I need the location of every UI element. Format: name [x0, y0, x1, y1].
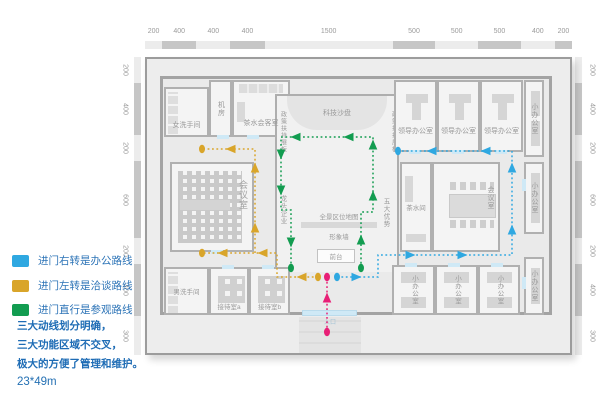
room-label: 领导办公室	[484, 126, 519, 136]
ruler-segment	[134, 316, 141, 355]
legend-item-negotiation: 进门左转是洽谈路线	[12, 278, 133, 293]
negotiation-route-swatch	[12, 280, 29, 292]
ruler-segment	[575, 83, 582, 135]
ruler-segment	[393, 41, 436, 49]
chairs	[450, 220, 494, 228]
policy-board-left-label: 政策扶持展板	[278, 102, 288, 162]
ruler-segment	[575, 238, 582, 264]
room-reception-a: 接待室a	[209, 267, 249, 315]
door	[262, 265, 274, 269]
door	[405, 263, 417, 267]
room-label: 女洗手间	[173, 120, 201, 130]
top-ruler	[145, 41, 572, 49]
room-small-office-right-middle: 小办公室	[524, 162, 544, 234]
room-label: 小办公室	[529, 103, 539, 135]
door	[491, 263, 503, 267]
dimension-label: 200	[148, 28, 160, 35]
room-label: 小办公室	[529, 270, 539, 302]
legend-label: 进门左转是洽谈路线	[38, 278, 133, 293]
dimension-label: 300	[589, 330, 596, 342]
ruler-segment	[575, 316, 582, 355]
ruler-segment	[134, 238, 141, 264]
dimension-label: 400	[207, 28, 219, 35]
tour-route-swatch	[12, 304, 29, 316]
dimension-label: 200	[589, 142, 596, 154]
dimension-label: 200	[122, 64, 129, 76]
floor-plan: 女洗手间 机房 茶水会客室 科技沙盘 政策扶持展板 政策扶持展板 龙头企业 五大…	[145, 57, 572, 355]
image-wall-label: 形象墙	[314, 231, 364, 240]
dimension-label: 400	[589, 284, 596, 296]
podium-table	[180, 200, 230, 210]
room-meeting: 会议室	[170, 162, 254, 252]
legend-item-tour: 进门直行是参观路线	[12, 302, 133, 317]
ruler-segment	[521, 41, 555, 49]
dimension-label: 500	[408, 28, 420, 35]
dimension-label: 200	[589, 64, 596, 76]
dimension-label: 400	[122, 103, 129, 115]
ruler-segment	[575, 161, 582, 239]
legend-item-office: 进门右转是办公路线	[12, 253, 133, 268]
ruler-segment	[134, 264, 141, 316]
ruler-segment	[162, 41, 196, 49]
left-ruler	[134, 57, 141, 355]
door	[522, 179, 526, 191]
room-label: 小办公室	[494, 275, 504, 305]
door	[247, 135, 259, 139]
ruler-segment	[265, 41, 393, 49]
door	[495, 150, 507, 154]
dimension-label: 600	[122, 194, 129, 206]
room-small-office-right-bottom: 小办公室	[524, 257, 544, 315]
legend-label: 进门直行是参观路线	[38, 302, 133, 317]
room-label: 科技沙盘	[323, 108, 351, 118]
dimension-label: 200	[122, 142, 129, 154]
front-desk: 前台	[317, 249, 355, 263]
ruler-segment	[134, 83, 141, 135]
room-label: 男洗手间	[174, 286, 200, 296]
room-label: 茶水会客室	[244, 118, 279, 128]
note-line-1: 三大动线划分明确，	[17, 318, 112, 333]
door	[522, 277, 526, 289]
room-small-office-2: 小办公室	[435, 265, 478, 315]
ruler-segment	[145, 41, 162, 49]
display-counter	[301, 222, 377, 228]
ruler-segment	[435, 41, 478, 49]
door	[452, 150, 464, 154]
door	[217, 135, 229, 139]
plan-size-label: 23*49m	[17, 376, 57, 388]
top-dimension-labels: 2004004004001500500500500400200	[145, 26, 572, 38]
dimension-label: 400	[589, 103, 596, 115]
ruler-segment	[575, 57, 582, 83]
ruler-segment	[134, 161, 141, 239]
room-leader-office-1: 领导办公室	[394, 80, 437, 152]
floor-plan-infographic: 2004004004001500500500500400200 20040020…	[0, 0, 600, 400]
room-label: 小办公室	[452, 275, 462, 305]
exhibition-hall: 科技沙盘 政策扶持展板 政策扶持展板 龙头企业 五大优势 全景区位地图 形象墙 …	[275, 94, 399, 272]
ruler-segment	[555, 41, 572, 49]
dimension-label: 600	[589, 194, 596, 206]
entrance-label: 入口	[319, 317, 341, 325]
room-small-office-3: 小办公室	[478, 265, 520, 315]
right-dimension-labels: 200400200600200400300	[585, 57, 599, 355]
room-leader-office-2: 领导办公室	[437, 80, 480, 152]
room-label: 茶水间	[406, 202, 426, 212]
room-label: 机房	[216, 101, 226, 117]
dimension-label: 500	[494, 28, 506, 35]
office-route-swatch	[12, 255, 29, 267]
room-small-office-right-top: 小办公室	[524, 80, 544, 157]
dimension-label: 200	[558, 28, 570, 35]
room-label: 接待室b	[258, 301, 281, 311]
room-label: 小办公室	[409, 275, 419, 305]
note-line-2: 三大功能区域不交叉，	[17, 337, 122, 352]
ruler-segment	[230, 41, 264, 49]
room-small-office-1: 小办公室	[392, 265, 435, 315]
ruler-segment	[478, 41, 521, 49]
room-tea-room: 茶水间	[400, 162, 432, 252]
dimension-label: 400	[173, 28, 185, 35]
door	[211, 250, 223, 254]
legend-label: 进门右转是办公路线	[38, 253, 133, 268]
dimension-label: 300	[122, 330, 129, 342]
room-label: 小办公室	[529, 182, 539, 214]
room-mens-restroom: 男洗手间	[164, 267, 209, 315]
dimension-label: 400	[242, 28, 254, 35]
right-ruler	[575, 57, 582, 355]
ruler-segment	[134, 57, 141, 83]
room-conference: 会议室	[432, 162, 500, 252]
dimension-label: 1500	[321, 28, 337, 35]
room-label: 前台	[330, 251, 343, 261]
tech-sandbox-area: 科技沙盘	[287, 96, 387, 130]
panorama-map-label: 全景区位地图	[309, 211, 369, 221]
room-label: 接待室a	[217, 301, 240, 311]
ruler-segment	[134, 135, 141, 161]
room-womens-restroom: 女洗手间	[164, 87, 209, 137]
door	[448, 263, 460, 267]
ruler-segment	[575, 264, 582, 316]
leading-enterprises-label: 龙头企业	[277, 191, 287, 229]
note-line-3: 极大的方便了管理和维护。	[17, 356, 143, 371]
room-machine-room: 机房	[209, 80, 232, 137]
dimension-label: 500	[451, 28, 463, 35]
five-advantages-label: 五大优势	[380, 196, 390, 230]
ruler-segment	[196, 41, 230, 49]
entrance-door	[302, 310, 357, 316]
room-reception-b: 接待室b	[249, 267, 290, 315]
room-label: 会议室	[237, 180, 250, 210]
dimension-label: 400	[532, 28, 544, 35]
door	[409, 150, 421, 154]
room-leader-office-3: 领导办公室	[480, 80, 523, 152]
ruler-segment	[575, 135, 582, 161]
room-label: 领导办公室	[441, 126, 476, 136]
room-label: 领导办公室	[398, 126, 433, 136]
door	[222, 265, 234, 269]
room-label: 会议室	[485, 186, 495, 210]
dimension-label: 200	[589, 246, 596, 258]
